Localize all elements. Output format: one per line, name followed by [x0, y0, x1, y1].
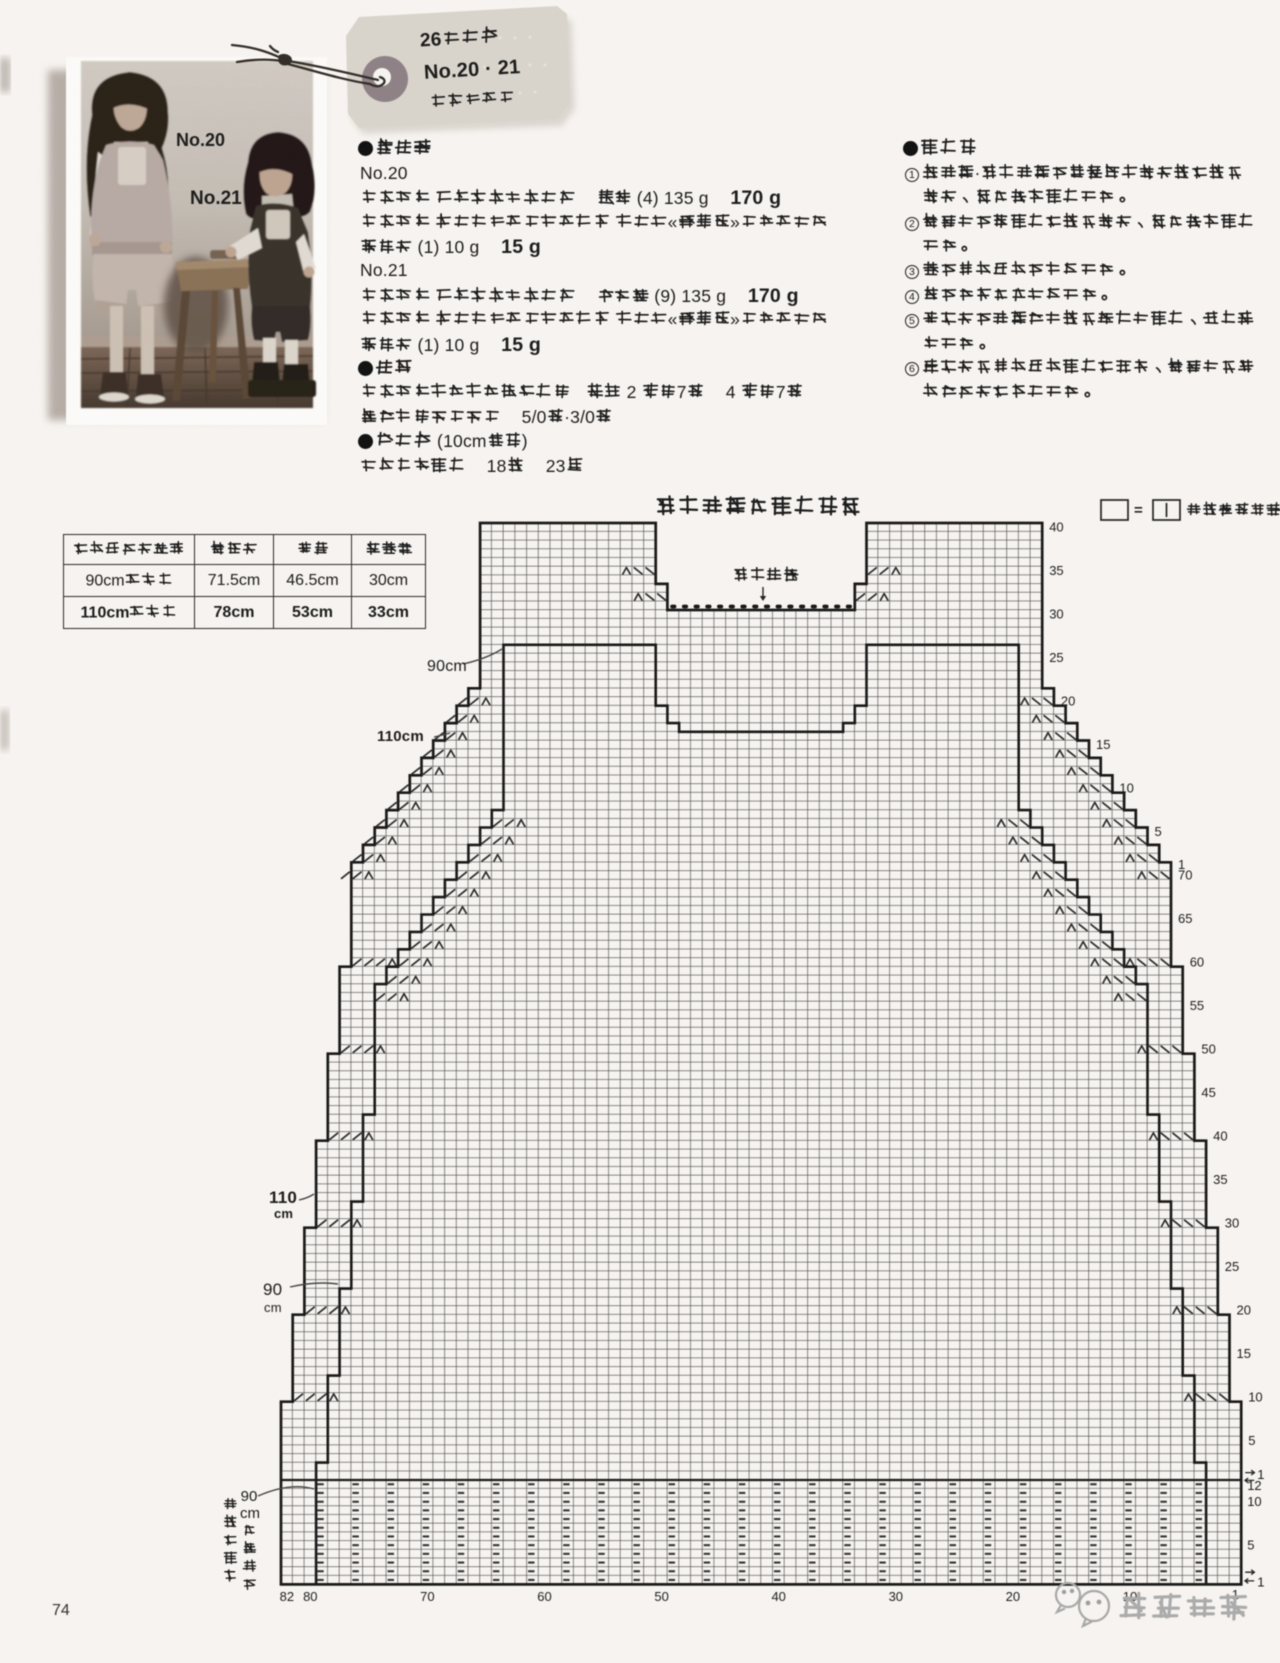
svg-text:40: 40 [1213, 1129, 1227, 1144]
svg-text:10: 10 [1119, 781, 1133, 796]
svg-text:20: 20 [1061, 694, 1075, 709]
svg-text:10: 10 [1247, 1494, 1261, 1509]
svg-text:30: 30 [1225, 1216, 1239, 1231]
svg-text:50: 50 [654, 1589, 668, 1604]
svg-text:=: = [1134, 502, 1143, 519]
svg-text:55: 55 [1190, 998, 1204, 1013]
svg-text:5: 5 [1247, 1538, 1254, 1553]
svg-text:70: 70 [420, 1589, 434, 1604]
svg-text:20: 20 [1237, 1303, 1251, 1318]
svg-text:70: 70 [1178, 868, 1192, 883]
svg-text:82: 82 [280, 1589, 294, 1604]
svg-text:15: 15 [1237, 1346, 1251, 1361]
svg-text:30: 30 [1049, 607, 1063, 622]
svg-text:10: 10 [1248, 1390, 1262, 1405]
svg-text:35: 35 [1213, 1172, 1227, 1187]
svg-text:50: 50 [1201, 1042, 1215, 1057]
svg-text:5: 5 [1155, 824, 1162, 839]
svg-text:45: 45 [1201, 1085, 1215, 1100]
svg-text:40: 40 [771, 1589, 785, 1604]
svg-text:30: 30 [889, 1589, 903, 1604]
svg-text:65: 65 [1178, 911, 1192, 926]
svg-text:60: 60 [537, 1589, 551, 1604]
svg-text:5: 5 [1248, 1433, 1255, 1448]
svg-text:25: 25 [1049, 650, 1063, 665]
svg-text:20: 20 [1006, 1589, 1020, 1604]
svg-text:80: 80 [303, 1589, 317, 1604]
svg-text:25: 25 [1225, 1259, 1239, 1274]
svg-text:15: 15 [1096, 737, 1110, 752]
svg-text:40: 40 [1049, 520, 1063, 535]
svg-text:35: 35 [1049, 563, 1063, 578]
svg-text:60: 60 [1190, 955, 1204, 970]
